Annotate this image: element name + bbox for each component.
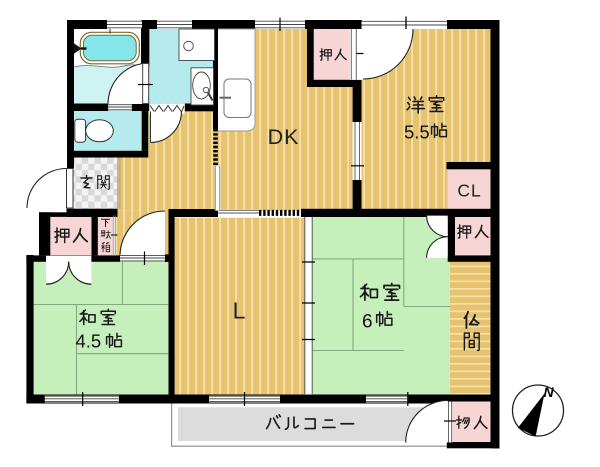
svg-text:L: L: [233, 298, 246, 324]
svg-text:6: 6: [362, 312, 373, 333]
svg-text:5.5: 5.5: [404, 122, 430, 143]
svg-text:CL: CL: [457, 181, 481, 201]
svg-text:N: N: [543, 384, 554, 400]
svg-text:DK: DK: [268, 125, 300, 149]
svg-text:4.5: 4.5: [76, 331, 102, 352]
